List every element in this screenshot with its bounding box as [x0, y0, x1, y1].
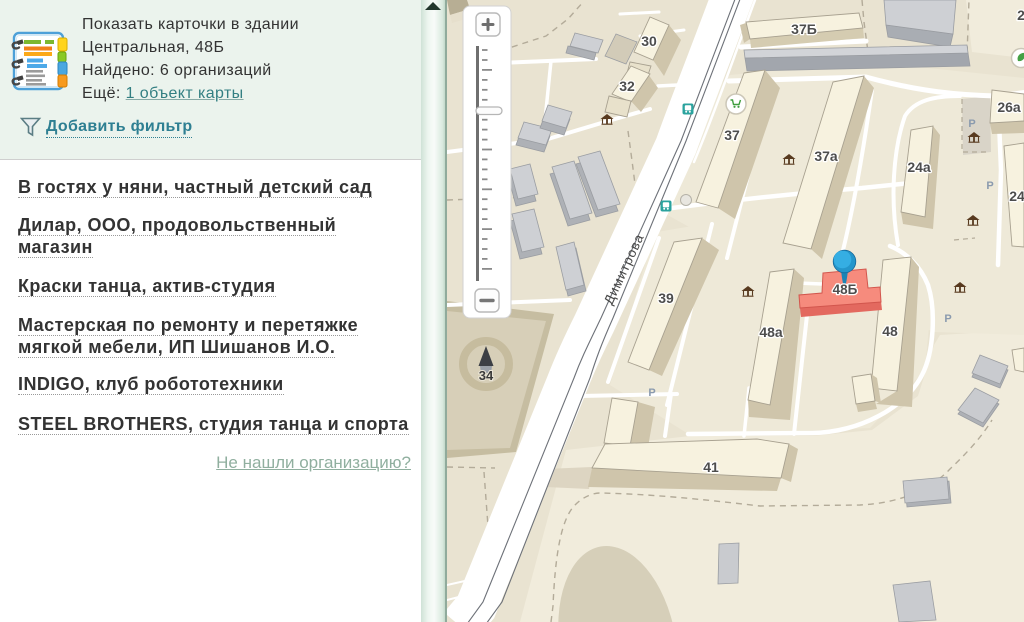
svg-text:P: P [968, 118, 975, 130]
svg-text:P: P [944, 313, 951, 325]
svg-text:48: 48 [882, 323, 898, 339]
svg-text:2: 2 [1017, 7, 1024, 23]
svg-text:48а: 48а [759, 324, 783, 340]
svg-text:37Б: 37Б [791, 21, 817, 37]
svg-text:24: 24 [1009, 188, 1024, 204]
svg-text:P: P [648, 387, 655, 399]
svg-text:48Б: 48Б [833, 282, 858, 297]
svg-text:34: 34 [479, 368, 494, 383]
svg-text:30: 30 [641, 33, 657, 49]
svg-text:26а: 26а [997, 99, 1021, 115]
svg-text:39: 39 [658, 290, 674, 306]
svg-text:P: P [986, 180, 993, 192]
svg-text:37: 37 [724, 127, 740, 143]
svg-text:32: 32 [619, 78, 635, 94]
svg-text:41: 41 [703, 459, 719, 475]
svg-text:24а: 24а [907, 159, 931, 175]
svg-text:37а: 37а [814, 148, 838, 164]
